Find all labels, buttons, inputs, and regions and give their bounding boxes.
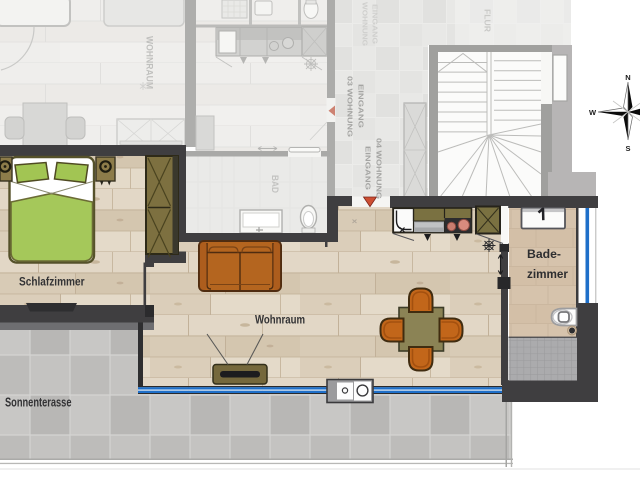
svg-text:Schlafzimmer: Schlafzimmer <box>19 275 85 289</box>
svg-text:N: N <box>625 73 630 82</box>
svg-text:EINGANG: EINGANG <box>357 84 366 128</box>
svg-text:WOHNRAUM: WOHNRAUM <box>145 36 155 89</box>
svg-text:BAD: BAD <box>270 175 280 193</box>
svg-text:04 WOHNUNG: 04 WOHNUNG <box>375 138 384 199</box>
svg-text:03 WOHNUNG: 03 WOHNUNG <box>346 76 355 137</box>
svg-text:WOHNUNG: WOHNUNG <box>361 2 368 47</box>
svg-text:S: S <box>625 144 630 153</box>
svg-text:Sonnenterasse: Sonnenterasse <box>5 396 72 410</box>
svg-text:Wohnraum: Wohnraum <box>255 313 305 327</box>
svg-text:W: W <box>589 108 597 117</box>
svg-text:EINGANG: EINGANG <box>371 4 378 45</box>
svg-text:Bade-: Bade- <box>527 247 561 261</box>
svg-text:EINGANG: EINGANG <box>364 146 373 190</box>
svg-text:zimmer: zimmer <box>527 267 568 281</box>
svg-text:FLUR: FLUR <box>483 9 493 32</box>
